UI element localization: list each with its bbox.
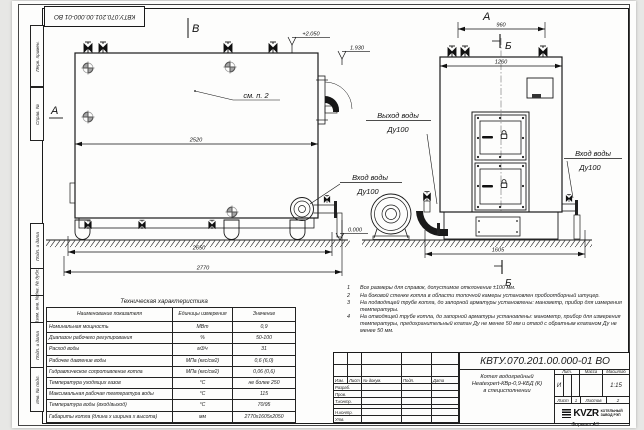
margin-cell-inv-podl: Инв. № подл. xyxy=(30,367,44,412)
view-label-a-right: А xyxy=(482,11,490,23)
drain-valve-icon xyxy=(139,220,145,229)
see-note-ref: см. п. 2 xyxy=(243,91,268,100)
table-row: Рабочее давление водыМПа (кгс/см2)0,6 (6… xyxy=(47,355,296,366)
door-handle xyxy=(482,136,493,139)
format-label: Формат А3 xyxy=(545,422,625,428)
elevation-mid: 1.930 xyxy=(350,46,365,52)
fan-blower xyxy=(371,194,411,240)
table-row: Максимальная рабочая температура воды°С1… xyxy=(47,389,296,400)
dim-1605: 1605 xyxy=(492,248,505,254)
note-item: 2На боковой стенке котла в области топоч… xyxy=(347,293,625,300)
tech-table-title: Техническая характеристика xyxy=(46,298,282,305)
document-title: Котел водогрейный Heatexpert-КВр-0,9-КБД… xyxy=(459,369,554,423)
valve-icon xyxy=(99,42,107,53)
margin-cell-podp-data-1: Подп. и дата xyxy=(30,223,44,270)
tech-col-value: Значение xyxy=(233,308,296,322)
inlet-flange-right xyxy=(562,194,580,239)
dim-1260: 1260 xyxy=(495,60,508,66)
kvzr-logo: KVZR КОТЕЛЬНЫЙ ЗАВОД РЭП xyxy=(555,404,630,423)
valve-icon xyxy=(539,46,547,57)
svg-text:Вход воды: Вход воды xyxy=(575,149,611,158)
notes-list: 1Все размеры для справок, допустимое отк… xyxy=(347,285,625,335)
ground xyxy=(46,240,592,247)
dim-2520: 2520 xyxy=(189,138,203,144)
table-row: Температура воды (вход/выход)°С70/95 xyxy=(47,400,296,411)
view-label-a-left: А xyxy=(50,105,58,117)
svg-text:Ду100: Ду100 xyxy=(386,125,409,134)
margin-cell-vzam-inv: Взам. инв. № xyxy=(30,295,44,324)
elevation-top: +2.050 xyxy=(302,32,320,38)
svg-text:Ду100: Ду100 xyxy=(356,187,379,196)
margin-cell-podp-data-2: Подп. и дата xyxy=(30,322,44,369)
svg-text:Ду100: Ду100 xyxy=(578,163,601,172)
foot xyxy=(75,220,90,240)
table-row: Гидравлическое сопротивление котлаМПа (к… xyxy=(47,366,296,377)
foot xyxy=(224,220,239,240)
lit-value: И xyxy=(555,375,564,397)
elevation-zero: 0.000 xyxy=(348,228,363,234)
boiler-front-view xyxy=(440,38,580,239)
title-block-left-grid: Изм. Лист № докум. Подп. Дата Разраб. Пр… xyxy=(334,353,459,423)
boiler-drawing: 2520 2650 2770 960 1260 1605 +2.050 1.93… xyxy=(46,8,630,292)
drain-valve-icon xyxy=(209,220,215,229)
table-row: Габариты котла (длина х ширина х высота)… xyxy=(47,411,296,422)
tech-table: Наименование показателя Единицы измерени… xyxy=(46,307,296,423)
section-label-b-top: Б xyxy=(505,41,512,52)
dim-2770: 2770 xyxy=(196,266,210,272)
tech-col-units: Единицы измерения xyxy=(173,308,233,322)
boiler-side-view xyxy=(70,42,352,240)
mass-value xyxy=(580,375,603,397)
svg-text:Вход воды: Вход воды xyxy=(352,173,388,182)
note-item: 4На отводящей трубе котла, до запорной а… xyxy=(347,314,625,334)
scale-value: 1:15 xyxy=(603,375,630,397)
valve-icon xyxy=(224,42,232,53)
view-label-v: В xyxy=(192,23,199,35)
foot xyxy=(290,220,305,240)
svg-text:Выход воды: Выход воды xyxy=(377,111,419,120)
table-row: Температура уходящих газов°Сне более 250 xyxy=(47,377,296,388)
dim-2650: 2650 xyxy=(192,246,206,252)
tech-col-name: Наименование показателя xyxy=(47,308,173,322)
tech-characteristics: Техническая характеристика Наименование … xyxy=(46,298,282,423)
logo-mark-icon xyxy=(562,409,571,418)
table-row: Расход водым3/ч31 xyxy=(47,344,296,355)
table-row: Диапазон рабочего регулирования%50-100 xyxy=(47,333,296,344)
margin-cell-sprav: Справ. № xyxy=(30,87,44,141)
note-item: 1Все размеры для справок, допустимое отк… xyxy=(347,285,625,292)
inlet-right-label: Вход воды Ду100 xyxy=(564,149,622,198)
inlet-side-label: Вход воды Ду100 xyxy=(310,173,402,204)
table-row: Номинальная мощностьМВт0,9 xyxy=(47,322,296,333)
valve-icon xyxy=(448,46,456,57)
margin-cell-inv-dubl: Инв. № дубл. xyxy=(30,268,44,297)
margin-cell-perv-primen: Перв. примен. xyxy=(30,25,44,87)
valve-icon xyxy=(461,46,469,57)
title-block: Изм. Лист № докум. Подп. Дата Разраб. Пр… xyxy=(333,352,630,424)
valve-icon xyxy=(84,42,92,53)
title-block-right: Лит. Масса Масштаб И 1:15 Лист 1 Листов … xyxy=(554,369,630,423)
explosion-valve xyxy=(325,96,339,112)
dim-960: 960 xyxy=(496,23,506,29)
door-handle xyxy=(482,185,493,188)
valve-icon xyxy=(269,42,277,53)
note-item: 3На подводящей трубе котла, до запорной … xyxy=(347,300,625,313)
document-number: КВТУ.070.201.00.000-01 ВО xyxy=(459,353,630,370)
